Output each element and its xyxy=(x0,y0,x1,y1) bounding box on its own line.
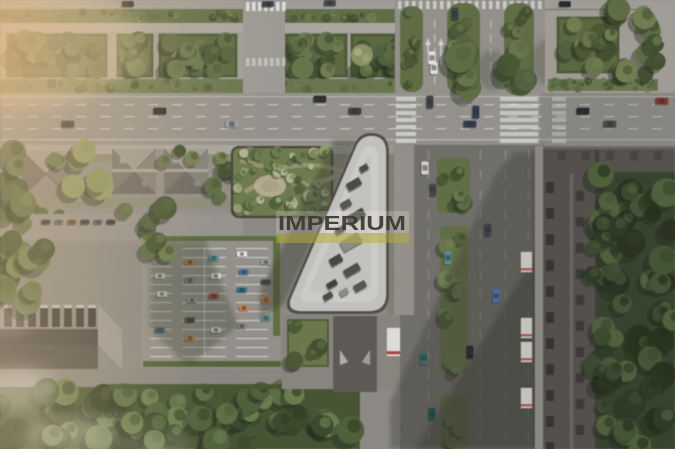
svg-text:IMPERIUM: IMPERIUM xyxy=(278,212,406,235)
